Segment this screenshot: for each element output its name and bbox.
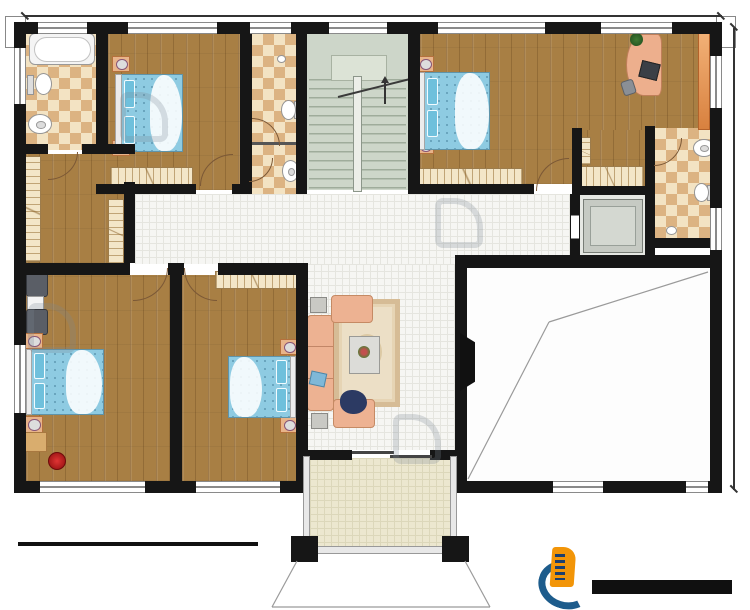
void-diagonal [549, 272, 708, 322]
title-underline [18, 542, 258, 546]
construction-lines [0, 0, 750, 610]
step-edge [272, 561, 297, 607]
room-label-stair [303, 184, 393, 200]
logo-windows [555, 554, 565, 580]
brand-logo-icon [538, 545, 590, 599]
dimension-line-right [733, 28, 735, 490]
void-diagonal [468, 322, 549, 479]
floorplan-canvas [0, 0, 750, 610]
brand-site [592, 580, 732, 594]
dimension-line-top [25, 15, 722, 17]
step-edge [465, 561, 490, 607]
